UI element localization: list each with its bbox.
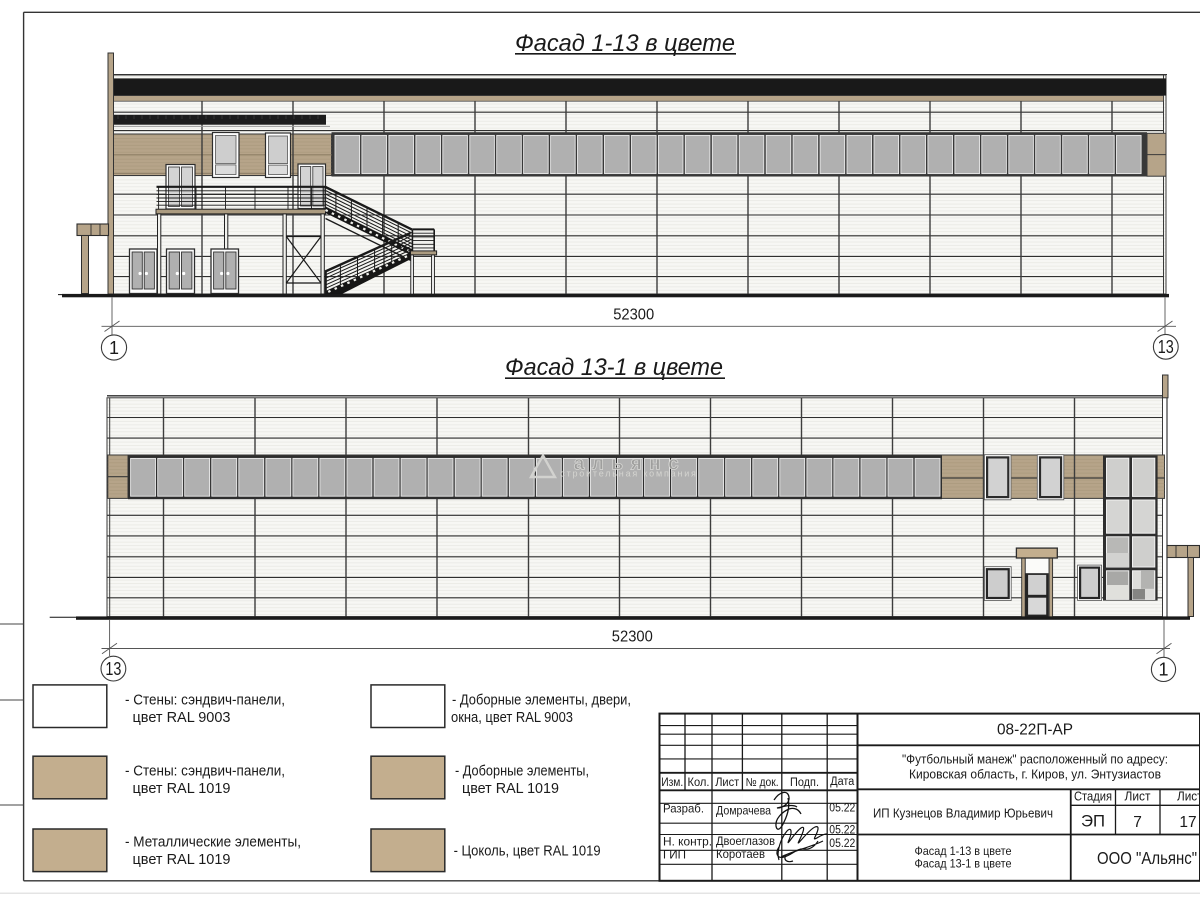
svg-text:Лист: Лист — [1125, 790, 1151, 804]
svg-text:Кировская область, г. Киров, у: Кировская область, г. Киров, ул. Энтузиа… — [909, 767, 1161, 782]
svg-text:13: 13 — [1158, 337, 1174, 357]
svg-text:- Доборные элементы, двери,: - Доборные элементы, двери, — [452, 693, 631, 709]
svg-text:Кол.: Кол. — [688, 777, 710, 789]
svg-text:цвет RAL 1019: цвет RAL 1019 — [133, 781, 231, 797]
svg-text:Лист: Лист — [715, 777, 740, 789]
svg-text:ГИП: ГИП — [663, 848, 686, 862]
svg-text:Дата: Дата — [830, 776, 855, 788]
svg-text:05.22: 05.22 — [829, 836, 855, 850]
svg-text:Изм.: Изм. — [661, 777, 683, 789]
svg-text:1: 1 — [109, 338, 119, 358]
svg-text:1: 1 — [1158, 660, 1168, 680]
svg-text:строительная компания: строительная компания — [560, 469, 697, 479]
svg-text:05.22: 05.22 — [829, 801, 855, 815]
svg-text:05.22: 05.22 — [829, 823, 855, 837]
svg-text:Двоеглазов: Двоеглазов — [716, 834, 775, 848]
svg-text:ИП Кузнецов Владимир Юрьевич: ИП Кузнецов Владимир Юрьевич — [873, 806, 1053, 821]
svg-text:- Стены: сэндвич-панели,: - Стены: сэндвич-панели, — [125, 764, 285, 780]
svg-text:13: 13 — [105, 659, 121, 679]
svg-text:Коротаев: Коротаев — [716, 847, 765, 861]
svg-text:"Футбольный манеж" расположенн: "Футбольный манеж" расположенный по адре… — [902, 752, 1168, 767]
svg-text:08-22П-АР: 08-22П-АР — [997, 722, 1073, 739]
svg-text:Фасад 13-1 в цвете: Фасад 13-1 в цвете — [505, 354, 723, 381]
svg-text:№ док.: № док. — [746, 777, 779, 789]
svg-text:ЭП: ЭП — [1081, 812, 1105, 831]
svg-text:- Стены: сэндвич-панели,: - Стены: сэндвич-панели, — [125, 693, 285, 709]
svg-text:Фасад 13-1 в цвете: Фасад 13-1 в цвете — [915, 857, 1012, 871]
svg-text:цвет RAL 1019: цвет RAL 1019 — [462, 781, 559, 797]
svg-text:цвет RAL 1019: цвет RAL 1019 — [133, 852, 231, 868]
svg-text:- Металлические элементы,: - Металлические элементы, — [125, 835, 301, 851]
svg-text:Подп.: Подп. — [790, 777, 819, 789]
svg-text:Н. контр.: Н. контр. — [663, 835, 712, 849]
svg-text:Домрачева: Домрачева — [716, 804, 771, 818]
svg-text:Стадия: Стадия — [1074, 790, 1112, 804]
svg-text:Листо: Листо — [1177, 790, 1200, 804]
svg-text:52300: 52300 — [613, 307, 654, 324]
svg-text:Разраб.: Разраб. — [663, 802, 704, 816]
svg-text:52300: 52300 — [612, 629, 653, 646]
svg-text:ООО "Альянс": ООО "Альянс" — [1097, 848, 1197, 868]
svg-text:- Цоколь, цвет RAL 1019: - Цоколь, цвет RAL 1019 — [454, 844, 601, 860]
svg-text:Фасад 1-13 в цвете: Фасад 1-13 в цвете — [515, 30, 735, 57]
svg-text:- Доборные элементы,: - Доборные элементы, — [455, 764, 589, 780]
svg-text:7: 7 — [1133, 814, 1142, 831]
svg-text:цвет RAL 9003: цвет RAL 9003 — [133, 710, 231, 726]
svg-text:окна, цвет RAL 9003: окна, цвет RAL 9003 — [451, 710, 573, 726]
svg-text:17: 17 — [1179, 814, 1196, 831]
